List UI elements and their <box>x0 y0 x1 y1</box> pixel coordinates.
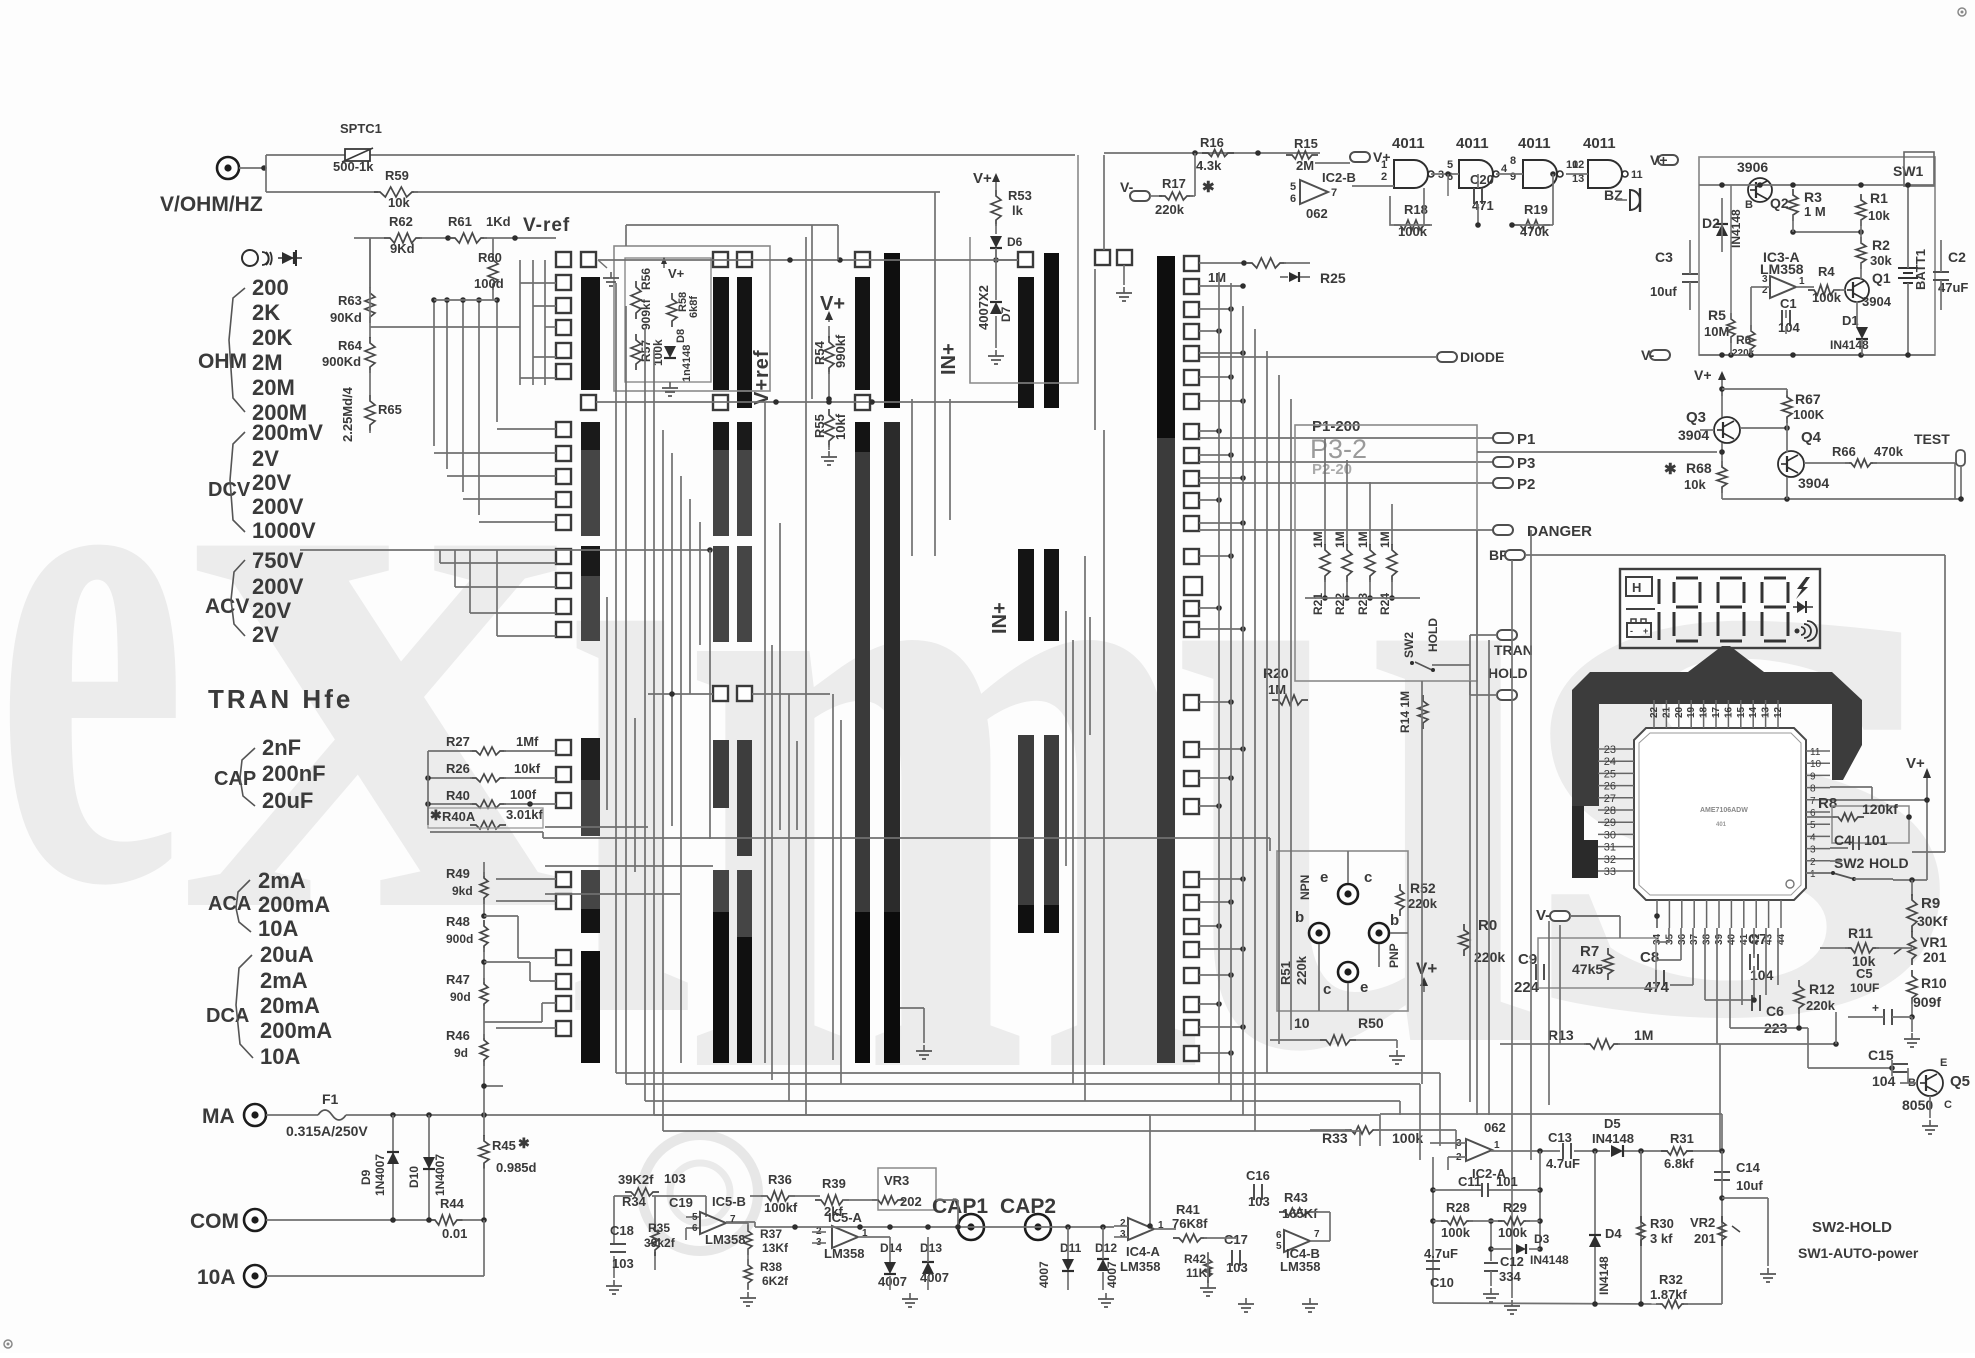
svg-text:38: 38 <box>1702 933 1713 945</box>
svg-text:13Kf: 13Kf <box>762 1241 789 1255</box>
svg-text:200mA: 200mA <box>258 892 330 917</box>
svg-text:R59: R59 <box>385 168 409 183</box>
svg-text:4007X2: 4007X2 <box>976 285 991 330</box>
svg-text:V+: V+ <box>820 293 845 315</box>
svg-text:D13: D13 <box>920 1241 942 1255</box>
svg-text:B: B <box>1745 199 1753 211</box>
svg-text:R42: R42 <box>1184 1252 1206 1266</box>
svg-text:C1: C1 <box>1780 296 1797 311</box>
svg-text:4011: 4011 <box>1518 135 1551 152</box>
svg-text:IN+: IN+ <box>989 602 1011 634</box>
svg-text:10k: 10k <box>388 195 410 210</box>
svg-text:1M: 1M <box>1268 682 1286 697</box>
svg-text:R67: R67 <box>1795 391 1821 407</box>
svg-text:V+ref: V+ref <box>751 349 773 405</box>
svg-text:20uA: 20uA <box>260 942 314 967</box>
svg-text:9: 9 <box>1810 771 1816 782</box>
svg-text:2V: 2V <box>252 622 279 647</box>
svg-text:R5: R5 <box>1708 307 1726 323</box>
svg-text:2: 2 <box>1120 1218 1126 1229</box>
svg-text:R4: R4 <box>1818 264 1835 279</box>
svg-text:39: 39 <box>1714 933 1725 945</box>
svg-text:103: 103 <box>1248 1194 1270 1209</box>
svg-text:✱: ✱ <box>430 807 442 823</box>
svg-text:1M: 1M <box>1311 531 1325 548</box>
svg-text:R15: R15 <box>1294 136 1318 151</box>
svg-text:C12: C12 <box>1500 1254 1524 1269</box>
svg-text:R66: R66 <box>1832 444 1856 459</box>
svg-text:2: 2 <box>1810 857 1816 868</box>
svg-text:R49: R49 <box>446 866 470 881</box>
svg-text:750V: 750V <box>252 548 304 573</box>
svg-text:20mA: 20mA <box>260 993 320 1018</box>
svg-text:1M: 1M <box>1333 531 1347 548</box>
svg-text:Q1: Q1 <box>1872 270 1891 286</box>
svg-text:10M: 10M <box>1704 324 1729 339</box>
svg-text:5: 5 <box>1810 820 1816 831</box>
svg-text:10uf: 10uf <box>1650 284 1677 299</box>
svg-text:5: 5 <box>1290 181 1296 193</box>
svg-text:IN4148: IN4148 <box>1830 338 1869 352</box>
svg-text:R25: R25 <box>1320 270 1346 286</box>
svg-text:11: 11 <box>1810 747 1821 758</box>
svg-text:100k: 100k <box>1392 1130 1423 1146</box>
svg-text:1: 1 <box>1799 276 1805 287</box>
svg-text:R7: R7 <box>1580 943 1599 960</box>
svg-text:D3: D3 <box>1534 1232 1550 1246</box>
svg-text:IC5-A: IC5-A <box>828 1210 863 1225</box>
svg-text:R10: R10 <box>1921 975 1947 991</box>
svg-text:R27: R27 <box>446 734 470 749</box>
svg-text:C14: C14 <box>1736 1160 1761 1175</box>
svg-text:R65: R65 <box>378 402 402 417</box>
svg-text:R26: R26 <box>446 761 470 776</box>
svg-text:19: 19 <box>1686 706 1697 718</box>
svg-text:BATT1: BATT1 <box>1913 249 1928 290</box>
svg-text:P1-200: P1-200 <box>1312 418 1360 435</box>
svg-text:IC2-B: IC2-B <box>1322 170 1356 185</box>
svg-text:4011: 4011 <box>1392 135 1425 152</box>
svg-text:90Kd: 90Kd <box>330 310 362 325</box>
svg-text:4011: 4011 <box>1583 135 1616 152</box>
svg-text:10uf: 10uf <box>1736 1178 1763 1193</box>
svg-text:6: 6 <box>692 1223 698 1234</box>
svg-text:IN4148: IN4148 <box>1530 1253 1569 1267</box>
svg-text:V-: V- <box>1641 347 1655 363</box>
svg-text:4011: 4011 <box>1456 135 1489 152</box>
svg-text:4.3k: 4.3k <box>1196 158 1222 173</box>
svg-text:D12: D12 <box>1095 1241 1117 1255</box>
svg-text:100k: 100k <box>1812 290 1842 305</box>
svg-text:C19: C19 <box>669 1195 693 1210</box>
svg-text:6: 6 <box>1290 193 1296 205</box>
svg-text:TRAN Hfe: TRAN Hfe <box>208 684 353 714</box>
svg-text:R17: R17 <box>1162 176 1186 191</box>
svg-text:5: 5 <box>1276 1241 1282 1252</box>
svg-text:IN4148: IN4148 <box>1597 1256 1611 1295</box>
svg-text:P3: P3 <box>1517 455 1535 472</box>
svg-text:SPTC1: SPTC1 <box>340 121 382 136</box>
svg-text:27: 27 <box>1604 793 1616 805</box>
svg-text:16: 16 <box>1723 706 1734 718</box>
svg-text:e: e <box>1320 869 1328 886</box>
svg-text:1N4007: 1N4007 <box>373 1154 387 1196</box>
svg-text:R13: R13 <box>1548 1027 1574 1043</box>
svg-text:R8: R8 <box>1818 795 1837 812</box>
svg-text:31: 31 <box>1604 842 1616 854</box>
svg-text:C18: C18 <box>610 1223 634 1238</box>
svg-text:25: 25 <box>1604 768 1616 780</box>
svg-text:4007: 4007 <box>878 1274 907 1289</box>
svg-text:P2: P2 <box>1517 476 1535 493</box>
svg-text:3: 3 <box>1810 845 1816 856</box>
svg-text:LM358: LM358 <box>705 1232 745 1247</box>
svg-text:R52: R52 <box>1410 880 1436 896</box>
svg-text:909kf: 909kf <box>639 298 653 330</box>
svg-text:900d: 900d <box>446 932 473 946</box>
svg-text:2mA: 2mA <box>260 968 308 993</box>
svg-text:C16: C16 <box>1246 1168 1270 1183</box>
svg-text:3.01kf: 3.01kf <box>506 807 544 822</box>
svg-text:D6: D6 <box>1007 235 1023 249</box>
svg-text:4007: 4007 <box>1037 1261 1051 1288</box>
svg-text:1000V: 1000V <box>252 518 316 543</box>
svg-text:CAP: CAP <box>214 768 256 790</box>
svg-text:R41: R41 <box>1176 1202 1200 1217</box>
svg-text:V-ref: V-ref <box>523 215 570 236</box>
svg-text:CAP2: CAP2 <box>1000 1195 1056 1218</box>
svg-text:R61: R61 <box>448 214 472 229</box>
svg-text:1M: 1M <box>1378 531 1392 548</box>
svg-text:R54: R54 <box>812 340 827 365</box>
svg-text:2M: 2M <box>1296 158 1314 173</box>
svg-text:220k: 220k <box>1806 998 1836 1013</box>
svg-text:LM358: LM358 <box>1120 1259 1160 1274</box>
svg-text:Q2: Q2 <box>1770 195 1789 211</box>
svg-text:26: 26 <box>1604 781 1616 793</box>
svg-text:1M: 1M <box>1356 531 1370 548</box>
svg-text:AME7106ADW: AME7106ADW <box>1700 807 1748 814</box>
svg-text:+: + <box>1643 626 1648 636</box>
svg-text:500-1k: 500-1k <box>333 159 374 174</box>
svg-text:201: 201 <box>1694 1231 1716 1246</box>
svg-text:R46: R46 <box>446 1028 470 1043</box>
svg-text:8050: 8050 <box>1902 1097 1933 1113</box>
svg-text:R40: R40 <box>446 788 470 803</box>
svg-text:Q4: Q4 <box>1801 429 1822 446</box>
svg-text:1Kd: 1Kd <box>486 214 511 229</box>
svg-text:DCA: DCA <box>206 1005 249 1027</box>
svg-text:1Mf: 1Mf <box>516 734 539 749</box>
svg-text:10A: 10A <box>197 1266 236 1289</box>
svg-text:10: 10 <box>1810 759 1822 770</box>
svg-text:IN4148: IN4148 <box>1592 1131 1634 1146</box>
svg-text:7: 7 <box>1810 796 1816 807</box>
svg-text:1: 1 <box>1381 159 1387 171</box>
svg-text:R34: R34 <box>622 1194 647 1209</box>
svg-text:4: 4 <box>1810 832 1816 843</box>
svg-text:8: 8 <box>1810 784 1816 795</box>
svg-text:22: 22 <box>1649 706 1660 718</box>
svg-text:100k: 100k <box>1498 1225 1528 1240</box>
svg-text:909f: 909f <box>1913 994 1941 1010</box>
svg-text:3906: 3906 <box>1737 159 1768 175</box>
svg-text:R64: R64 <box>338 338 363 353</box>
svg-text:103: 103 <box>1226 1260 1248 1275</box>
svg-text:100K: 100K <box>1793 407 1825 422</box>
svg-text:9kd: 9kd <box>452 884 473 898</box>
svg-text:12: 12 <box>1773 706 1784 718</box>
svg-text:224: 224 <box>1514 979 1540 996</box>
svg-text:R48: R48 <box>446 914 470 929</box>
svg-text:R55: R55 <box>812 414 827 438</box>
svg-text:18: 18 <box>1699 706 1710 718</box>
svg-text:3: 3 <box>1762 274 1768 285</box>
svg-text:30: 30 <box>1604 829 1616 841</box>
svg-text:40: 40 <box>1726 933 1737 945</box>
svg-text:0.985d: 0.985d <box>496 1160 537 1175</box>
svg-text:6K2f: 6K2f <box>762 1274 789 1288</box>
svg-text:062: 062 <box>1306 206 1328 221</box>
svg-text:5: 5 <box>1447 159 1453 171</box>
svg-text:20uF: 20uF <box>262 788 313 813</box>
svg-text:SW1: SW1 <box>1893 163 1924 179</box>
svg-text:IC4-A: IC4-A <box>1126 1244 1161 1259</box>
svg-text:R24: R24 <box>1378 593 1392 615</box>
svg-text:47k5: 47k5 <box>1572 961 1603 977</box>
svg-text:30k: 30k <box>1870 253 1892 268</box>
svg-text:V+: V+ <box>1694 367 1712 383</box>
svg-text:10kf: 10kf <box>514 761 541 776</box>
svg-text:C7: C7 <box>1748 931 1767 948</box>
svg-text:2nF: 2nF <box>262 735 301 760</box>
svg-text:V+: V+ <box>1906 755 1925 772</box>
svg-text:1N4007: 1N4007 <box>433 1154 447 1196</box>
svg-text:R35: R35 <box>648 1221 670 1235</box>
svg-text:TRAN: TRAN <box>1494 642 1533 658</box>
svg-text:200mA: 200mA <box>260 1018 332 1043</box>
svg-text:PNP: PNP <box>1387 943 1401 968</box>
svg-text:103: 103 <box>664 1171 686 1186</box>
svg-text:C10: C10 <box>1430 1275 1454 1290</box>
svg-text:100k: 100k <box>1441 1225 1471 1240</box>
svg-text:HOLD: HOLD <box>1426 618 1440 652</box>
svg-text:90d: 90d <box>450 990 471 1004</box>
svg-text:100k: 100k <box>1398 224 1428 239</box>
svg-text:0.01: 0.01 <box>442 1226 467 1241</box>
svg-text:3: 3 <box>1120 1229 1126 1240</box>
svg-text:10kf: 10kf <box>833 413 848 440</box>
svg-text:37: 37 <box>1689 933 1700 945</box>
svg-text:R14 1M: R14 1M <box>1398 691 1412 733</box>
svg-text:2M: 2M <box>252 350 283 375</box>
svg-text:IC5-B: IC5-B <box>712 1194 746 1209</box>
svg-text:1M: 1M <box>1208 270 1226 285</box>
svg-text:20K: 20K <box>252 325 292 350</box>
svg-text:R30: R30 <box>1650 1216 1674 1231</box>
svg-text:C20: C20 <box>1470 172 1494 187</box>
svg-text:SW2: SW2 <box>1834 855 1865 871</box>
svg-text:120kf: 120kf <box>1862 801 1898 817</box>
svg-text:39k2f: 39k2f <box>644 1236 676 1250</box>
svg-text:R33: R33 <box>1322 1130 1348 1146</box>
svg-text:F1: F1 <box>322 1091 339 1107</box>
svg-text:2: 2 <box>1381 171 1387 183</box>
svg-text:3904: 3904 <box>1798 475 1829 491</box>
svg-text:062: 062 <box>1484 1120 1506 1135</box>
svg-text:R0: R0 <box>1478 917 1497 934</box>
svg-text:✱: ✱ <box>1664 461 1677 478</box>
svg-text:20V: 20V <box>252 598 291 623</box>
svg-text:4.7uF: 4.7uF <box>1546 1156 1580 1171</box>
svg-text:1: 1 <box>1494 1140 1500 1151</box>
svg-text:220k: 220k <box>1294 955 1309 985</box>
svg-text:R43: R43 <box>1284 1190 1308 1205</box>
svg-text:100f: 100f <box>510 787 537 802</box>
svg-text:R23: R23 <box>1356 593 1370 615</box>
svg-text:e: e <box>1360 979 1368 996</box>
svg-text:33: 33 <box>1604 866 1616 878</box>
svg-text:202: 202 <box>900 1194 922 1209</box>
svg-text:39K2f: 39K2f <box>618 1172 654 1187</box>
svg-text:R21: R21 <box>1311 593 1325 615</box>
svg-text:CAP1: CAP1 <box>932 1195 988 1218</box>
svg-text:24: 24 <box>1604 756 1616 768</box>
svg-text:D9: D9 <box>359 1169 373 1185</box>
svg-text:b: b <box>1390 912 1399 929</box>
svg-text:104: 104 <box>1778 320 1800 335</box>
svg-text:36: 36 <box>1677 933 1688 945</box>
svg-text:9Kd: 9Kd <box>390 241 415 256</box>
svg-text:20V: 20V <box>252 470 291 495</box>
svg-text:15: 15 <box>1736 706 1747 718</box>
svg-text:V-: V- <box>1536 907 1550 924</box>
svg-text:C17: C17 <box>1224 1232 1248 1247</box>
svg-text:R47: R47 <box>446 972 470 987</box>
svg-text:C15: C15 <box>1868 1047 1894 1063</box>
svg-text:101: 101 <box>1864 832 1888 848</box>
svg-text:R40A: R40A <box>442 809 476 824</box>
svg-text:LM358: LM358 <box>824 1246 864 1261</box>
svg-text:6: 6 <box>1276 1230 1282 1241</box>
svg-text:VR2: VR2 <box>1690 1215 1715 1230</box>
svg-text:20: 20 <box>1674 706 1685 718</box>
svg-text:200V: 200V <box>252 574 304 599</box>
svg-text:R29: R29 <box>1503 1200 1527 1215</box>
svg-text:13: 13 <box>1761 706 1772 718</box>
svg-text:R16: R16 <box>1200 135 1224 150</box>
svg-text:6k8f: 6k8f <box>688 296 700 318</box>
svg-text:401: 401 <box>1716 822 1727 828</box>
svg-text:4007: 4007 <box>1105 1261 1119 1288</box>
svg-text:C13: C13 <box>1548 1130 1572 1145</box>
svg-text:D4: D4 <box>1605 1226 1622 1241</box>
svg-text:c: c <box>1323 981 1331 998</box>
svg-text:P1: P1 <box>1517 431 1535 448</box>
svg-text:34: 34 <box>1652 933 1663 945</box>
svg-text:200mV: 200mV <box>252 420 323 445</box>
svg-text:10A: 10A <box>260 1044 300 1069</box>
svg-text:23: 23 <box>1604 744 1616 756</box>
svg-text:470k: 470k <box>1520 224 1550 239</box>
svg-text:2V: 2V <box>252 446 279 471</box>
svg-text:990kf: 990kf <box>833 334 848 368</box>
svg-text:30Kf: 30Kf <box>1917 913 1948 929</box>
svg-text:100d: 100d <box>474 276 504 291</box>
svg-text:R32: R32 <box>1659 1272 1683 1287</box>
svg-text:47uF: 47uF <box>1938 280 1968 295</box>
svg-text:D10: D10 <box>407 1166 421 1188</box>
svg-text:COM: COM <box>190 1210 239 1233</box>
svg-text:2mA: 2mA <box>258 868 306 893</box>
svg-text:20M: 20M <box>252 375 295 400</box>
svg-text:C9: C9 <box>1518 951 1537 968</box>
svg-text:Q3: Q3 <box>1686 409 1706 426</box>
svg-text:C2: C2 <box>1948 249 1966 265</box>
svg-text:8: 8 <box>1510 155 1516 167</box>
svg-text:C11: C11 <box>1458 1174 1481 1189</box>
svg-text:C4: C4 <box>1834 832 1852 848</box>
svg-text:HOLD: HOLD <box>1488 665 1528 681</box>
svg-text:101: 101 <box>1496 1174 1518 1189</box>
svg-text:m: m <box>680 262 1206 1261</box>
svg-text:Q5: Q5 <box>1950 1073 1970 1090</box>
svg-text:H: H <box>1632 580 1641 595</box>
svg-text:P2-20: P2-20 <box>1312 461 1352 478</box>
svg-text:220k: 220k <box>1155 202 1185 217</box>
svg-text:C6: C6 <box>1766 1003 1784 1019</box>
svg-text:21: 21 <box>1661 706 1672 718</box>
svg-text:17: 17 <box>1711 706 1722 718</box>
svg-text:SW2-HOLD: SW2-HOLD <box>1812 1219 1892 1236</box>
svg-text:10: 10 <box>1294 1015 1310 1031</box>
svg-text:R56: R56 <box>639 268 653 290</box>
svg-text:R63: R63 <box>338 293 362 308</box>
svg-text:R12: R12 <box>1809 981 1835 997</box>
svg-text:V+: V+ <box>668 266 685 281</box>
svg-text:R3: R3 <box>1804 189 1822 205</box>
svg-text:D1: D1 <box>1842 313 1859 328</box>
svg-text:201: 201 <box>1923 949 1947 965</box>
svg-text:R31: R31 <box>1670 1131 1694 1146</box>
svg-text:D8: D8 <box>675 329 687 343</box>
svg-text:D5: D5 <box>1604 1116 1621 1131</box>
svg-text:V/OHM/HZ: V/OHM/HZ <box>160 193 263 216</box>
svg-text:900Kd: 900Kd <box>322 354 361 369</box>
svg-text:C3: C3 <box>1655 249 1673 265</box>
svg-text:V+: V+ <box>1650 152 1668 168</box>
svg-text:11: 11 <box>1631 169 1643 181</box>
svg-text:200nF: 200nF <box>262 761 326 786</box>
svg-text:e: e <box>0 248 187 1033</box>
svg-text:9d: 9d <box>454 1046 468 1060</box>
svg-text:R22: R22 <box>1333 593 1347 615</box>
svg-text:7: 7 <box>1314 1229 1320 1240</box>
svg-text:200: 200 <box>252 275 289 300</box>
svg-text:2K: 2K <box>252 300 280 325</box>
svg-text:LM358: LM358 <box>1280 1259 1320 1274</box>
svg-text:SW2: SW2 <box>1402 632 1416 658</box>
svg-text:R60: R60 <box>478 250 502 265</box>
svg-text:R11: R11 <box>1848 925 1873 941</box>
svg-text:35: 35 <box>1664 933 1675 945</box>
svg-text:+: + <box>1872 1001 1879 1015</box>
svg-text:10k: 10k <box>1684 477 1706 492</box>
svg-text:D14: D14 <box>880 1241 902 1255</box>
svg-text:V+: V+ <box>973 170 992 187</box>
svg-text:R2: R2 <box>1872 237 1890 253</box>
svg-text:MA: MA <box>202 1105 235 1128</box>
